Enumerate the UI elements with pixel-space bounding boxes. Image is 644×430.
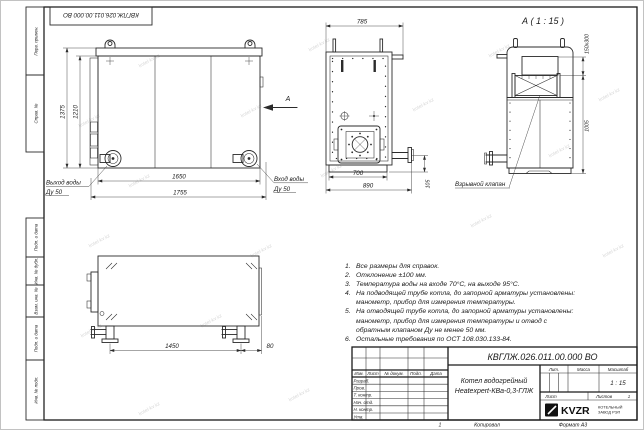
corner-mark bbox=[246, 314, 257, 320]
col-data: Дата bbox=[429, 371, 442, 376]
row-nachotd: Нач. отд. bbox=[354, 400, 374, 405]
lug bbox=[561, 39, 565, 48]
note-text: Температура воды на входе 70°С, на выход… bbox=[356, 280, 579, 289]
note-item: 1. Все размеры для справок. bbox=[345, 262, 579, 271]
row-tkontr: Т. контр. bbox=[354, 393, 373, 398]
foot-plate bbox=[102, 339, 118, 343]
leg bbox=[237, 326, 245, 339]
margin-label-invpodl: Инв. № подл. bbox=[34, 376, 39, 403]
note-number: 1. bbox=[345, 262, 356, 271]
title-block: КВГЛЖ.026.011.00.000 ВО Котел водогрейны… bbox=[352, 347, 637, 429]
outlet-label: Выход воды bbox=[46, 180, 81, 187]
watermark-text: kotel-kv.kz bbox=[288, 387, 312, 403]
col-izm: Изм. bbox=[354, 371, 363, 376]
side-body bbox=[326, 52, 392, 165]
format-label: Формат А3 bbox=[559, 423, 587, 429]
watermark-text: kotel-kv.kz bbox=[548, 143, 572, 159]
top-stamp-number: КВГЛЖ.026.011.00.000 ВО bbox=[63, 11, 139, 18]
doc-number: КВГЛЖ.026.011.00.000 ВО bbox=[487, 352, 597, 362]
note-item: 2. Отклонение ±100 мм. bbox=[345, 271, 579, 280]
note-number: 4. bbox=[345, 289, 356, 307]
watermark-text: kotel-kv.kz bbox=[250, 243, 274, 259]
dim-150x300: 150х300 bbox=[585, 34, 591, 54]
kopiroval-label: Копировал bbox=[474, 423, 500, 429]
lug-hole-right bbox=[248, 42, 252, 46]
dim-80: 80 bbox=[267, 343, 274, 350]
small-port bbox=[100, 312, 104, 316]
watermark-text: kotel-kv.kz bbox=[138, 53, 162, 69]
note-item: 6. Остальные требования по ОСТ 108.030.1… bbox=[345, 335, 579, 344]
view-arrow-head bbox=[263, 104, 273, 110]
list-label: Лист bbox=[544, 394, 557, 399]
note-item: 3. Температура воды на входе 70°С, на вы… bbox=[345, 280, 579, 289]
hinge-block bbox=[91, 134, 98, 146]
chimney-box bbox=[522, 57, 558, 76]
watermark-text: kotel-kv.kz bbox=[308, 37, 332, 53]
burner-latch bbox=[380, 139, 384, 150]
row-prov: Пров. bbox=[354, 386, 366, 391]
scale-value: 1 : 15 bbox=[610, 380, 626, 387]
note-text: Остальные требования по ОСТ 108.030.133-… bbox=[356, 335, 579, 344]
dim-1005: 1005 bbox=[585, 120, 591, 132]
note-text: На отводящей трубе котла, до запорной ар… bbox=[356, 307, 579, 334]
dim-785: 785 bbox=[357, 19, 368, 26]
watermark-text: kotel-kv.kz bbox=[138, 401, 162, 417]
margin-label-vzam: Взам. инв. № bbox=[34, 287, 39, 314]
left-bar bbox=[91, 272, 98, 312]
plan-view: 1450 80 bbox=[87, 256, 274, 354]
slot bbox=[374, 60, 376, 72]
lug-hole-left bbox=[108, 42, 112, 46]
left-strip bbox=[90, 58, 98, 165]
detail-view-a: А ( 1 : 15 ) 150х300 1005 Взрывной клапа… bbox=[455, 16, 591, 188]
outlet-dn-label: Ду 50 bbox=[45, 189, 63, 196]
inlet-label: Вход воды bbox=[274, 176, 304, 183]
margin-label-invdubl: Инв. № дубл. bbox=[34, 257, 39, 284]
margin-label-podp2: Подп. и дата bbox=[34, 324, 39, 352]
note-text: Отклонение ±100 мм. bbox=[356, 271, 579, 280]
dim-1210: 1210 bbox=[73, 105, 80, 119]
col-podp: Подп. bbox=[410, 371, 422, 376]
dim-1450: 1450 bbox=[165, 343, 179, 350]
dim-1375: 1375 bbox=[60, 105, 67, 119]
watermark-text: kotel-kv.kz bbox=[488, 43, 512, 59]
drawing-sheet: kotel-kv.kz kotel-kv.kz kotel-kv.kz kote… bbox=[0, 0, 644, 430]
slot bbox=[341, 60, 343, 72]
note-text: Все размеры для справок. bbox=[356, 262, 579, 271]
product-name-line1: Котел водогрейный bbox=[461, 377, 528, 385]
lug bbox=[333, 39, 336, 52]
margin-label-perv: Перв. примен. bbox=[34, 26, 39, 55]
col-list: Лист bbox=[366, 371, 379, 376]
plan-body bbox=[98, 256, 259, 326]
hinge-block bbox=[91, 148, 98, 158]
hinge-block bbox=[91, 122, 98, 132]
pipe-flange bbox=[223, 327, 226, 339]
row-utv: Утв. bbox=[354, 414, 364, 419]
inlet-dn-label: Ду 50 bbox=[273, 186, 291, 193]
drawing-canvas: kotel-kv.kz kotel-kv.kz kotel-kv.kz kote… bbox=[0, 0, 644, 430]
note-number: 5. bbox=[345, 307, 356, 334]
col-docum: № докум. bbox=[384, 371, 403, 376]
note-number: 6. bbox=[345, 335, 356, 344]
dim-890: 890 bbox=[363, 183, 374, 190]
watermark-text: kotel-kv.kz bbox=[88, 233, 112, 249]
watermark-text: kotel-kv.kz bbox=[412, 97, 436, 113]
watermark-text: kotel-kv.kz bbox=[602, 243, 626, 259]
dim-700: 700 bbox=[353, 170, 364, 177]
lug bbox=[514, 39, 518, 48]
massa-header: Масса bbox=[577, 367, 591, 372]
corner-mark bbox=[106, 314, 117, 320]
note-number: 3. bbox=[345, 280, 356, 289]
boiler-top-bar bbox=[96, 48, 262, 56]
company-line2: ЗАВОД РЭП bbox=[598, 410, 620, 415]
boiler-body bbox=[98, 56, 260, 168]
watermark-text: kotel-kv.kz bbox=[200, 313, 224, 329]
margin-label-sprav: Справ. № bbox=[34, 103, 39, 123]
row-razrab: Разраб. bbox=[354, 378, 370, 383]
listov-value: 1 bbox=[628, 394, 631, 399]
masshtab-header: Масштаб bbox=[608, 367, 629, 372]
product-name-line2: Heatexpert-КВа-0,3-ГЛЖ bbox=[455, 388, 534, 395]
side-pipe-flange bbox=[490, 152, 493, 166]
corner-mark bbox=[246, 263, 257, 269]
view-arrow-label: А bbox=[285, 96, 291, 103]
dim-1755: 1755 bbox=[173, 190, 187, 197]
watermark-text: kotel-kv.kz bbox=[598, 87, 622, 103]
lug bbox=[380, 39, 383, 52]
leg bbox=[106, 326, 114, 339]
margin-column: Перв. примен. Справ. № Подп. и дата Инв.… bbox=[26, 7, 44, 420]
explosion-valve-label: Взрывной клапан bbox=[455, 181, 506, 188]
technical-notes: 1. Все размеры для справок. 2. Отклонени… bbox=[345, 262, 579, 344]
burner-hinge bbox=[334, 139, 338, 150]
note-text: На подводящей трубе котла, до запорной а… bbox=[356, 289, 579, 307]
note-item: 4. На подводящей трубе котла, до запорно… bbox=[345, 289, 579, 307]
right-tab bbox=[260, 77, 263, 87]
corner-mark bbox=[106, 263, 117, 269]
note-number: 2. bbox=[345, 271, 356, 280]
dim-1650: 1650 bbox=[172, 174, 186, 181]
foot-plate bbox=[233, 339, 249, 343]
lit-header: Лит. bbox=[548, 367, 559, 372]
detail-view-title: А ( 1 : 15 ) bbox=[521, 16, 564, 26]
note-item: 5. На отводящей трубе котла, до запорной… bbox=[345, 307, 579, 334]
page-number: 1 bbox=[439, 423, 442, 429]
kvzr-logo-text: KVZR bbox=[561, 405, 590, 417]
dim-105: 105 bbox=[426, 180, 432, 189]
rear-pipe-flange bbox=[408, 148, 412, 163]
margin-label-podp1: Подп. и дата bbox=[34, 223, 39, 251]
row-nkontr: Н. контр. bbox=[354, 407, 374, 412]
listov-label: Листов bbox=[595, 394, 613, 399]
watermark-text: kotel-kv.kz bbox=[470, 213, 494, 229]
